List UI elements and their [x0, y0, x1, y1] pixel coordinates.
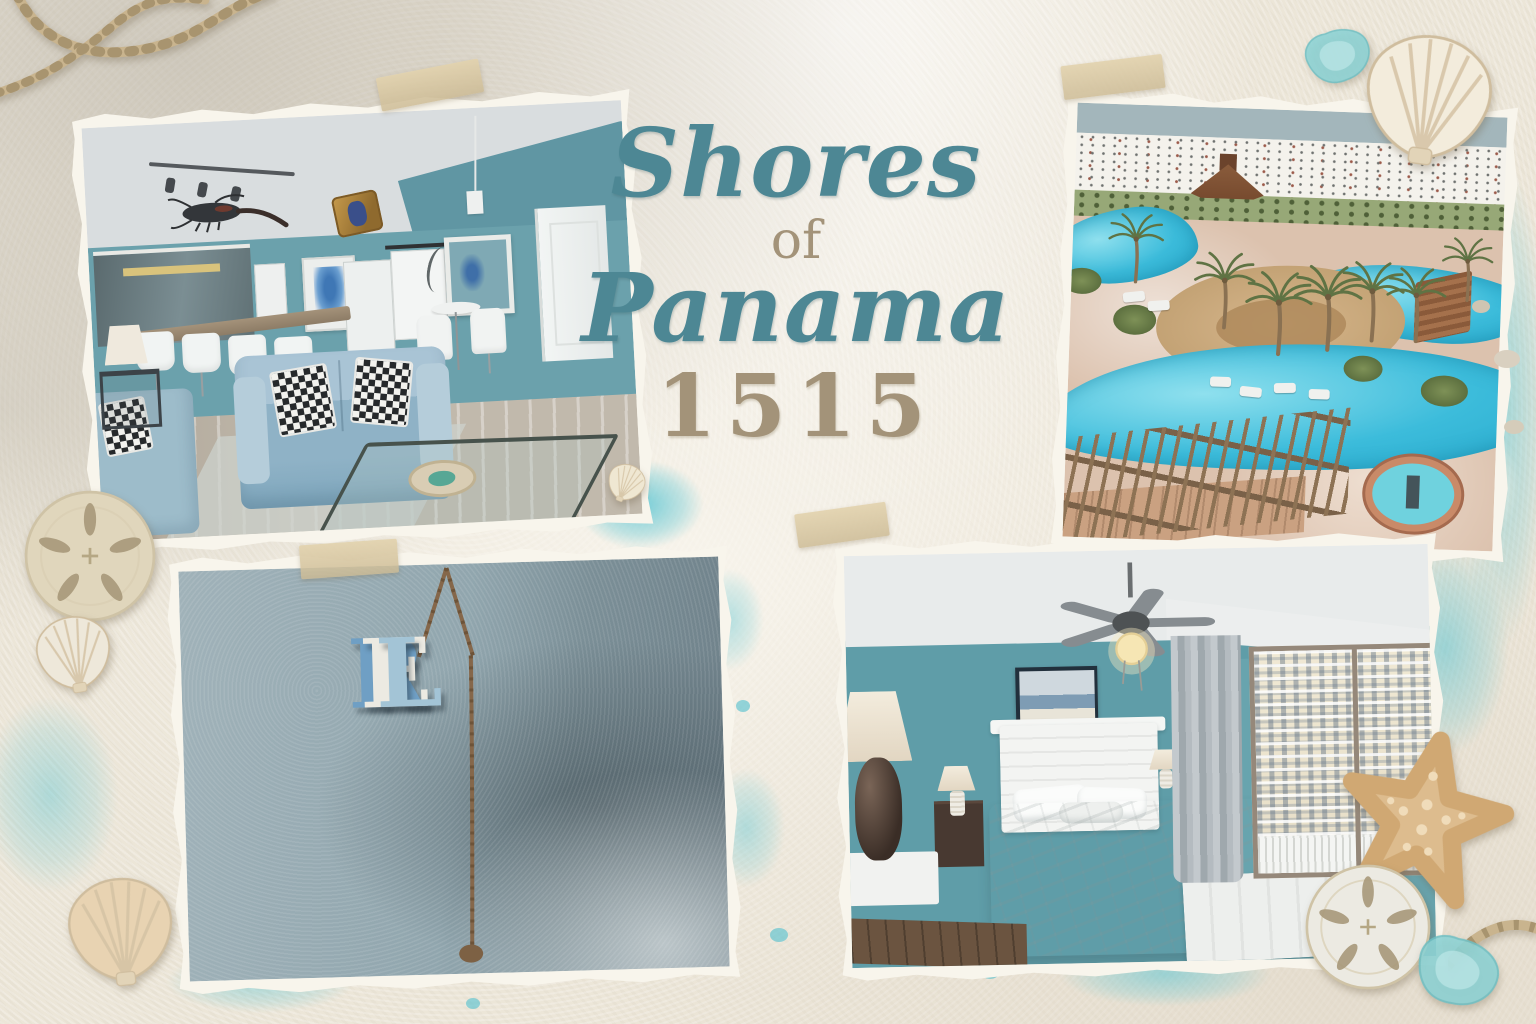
lounge-chair: [1308, 389, 1330, 400]
sign-letter: L: [374, 626, 443, 721]
sofa-arm: [232, 376, 270, 485]
pebble: [1494, 350, 1520, 368]
paint-dot: [736, 700, 750, 712]
palm-tree-icon: [1432, 232, 1504, 304]
vase-lamp-base: [854, 757, 903, 861]
wood-floor: [851, 918, 1027, 968]
rope-icon: [0, 0, 420, 208]
title-unit-number: 1515: [578, 364, 1014, 450]
tape-strip: [794, 502, 890, 548]
geometric-pillow: [349, 357, 413, 428]
geometric-pillow: [269, 363, 338, 438]
lamp-base: [1159, 770, 1172, 789]
scallop-shell-icon: [1343, 18, 1513, 180]
title-panama: Panama: [578, 261, 1014, 358]
lounge-chair: [1122, 290, 1144, 303]
tape-strip: [299, 539, 399, 580]
hanging-cord: [474, 116, 476, 191]
postcard-collage: R E L: [0, 0, 1536, 1024]
title-block: Shores of Panama 1515: [578, 116, 1014, 450]
doorbell-chime: [466, 190, 483, 214]
side-table: [100, 369, 163, 430]
paint-dot: [770, 928, 788, 942]
lounge-chair: [1210, 376, 1232, 387]
relax-sign-scene: R E L: [178, 557, 729, 982]
lamp-base: [950, 791, 966, 816]
bar-stool: [182, 333, 222, 374]
dresser: [844, 851, 939, 907]
high-chair: [470, 307, 507, 354]
hall-door: [343, 259, 396, 359]
paint-dot: [466, 998, 480, 1009]
sand-dollar-icon: [20, 488, 160, 624]
scallop-shell-icon: [52, 866, 190, 997]
gray-curtain: [1171, 635, 1244, 883]
hanging-rope-icon: [178, 557, 729, 982]
scallop-shell-icon: [21, 605, 126, 704]
photo-relax-sign: R E L: [162, 540, 746, 998]
lounge-chair: [1274, 383, 1296, 394]
palm-tree-icon: [1097, 208, 1176, 287]
tape-strip: [1060, 54, 1165, 100]
title-shores: Shores: [578, 116, 1014, 213]
pebble: [1504, 420, 1524, 434]
pebble: [1472, 300, 1490, 313]
yellow-sign: [122, 263, 219, 276]
